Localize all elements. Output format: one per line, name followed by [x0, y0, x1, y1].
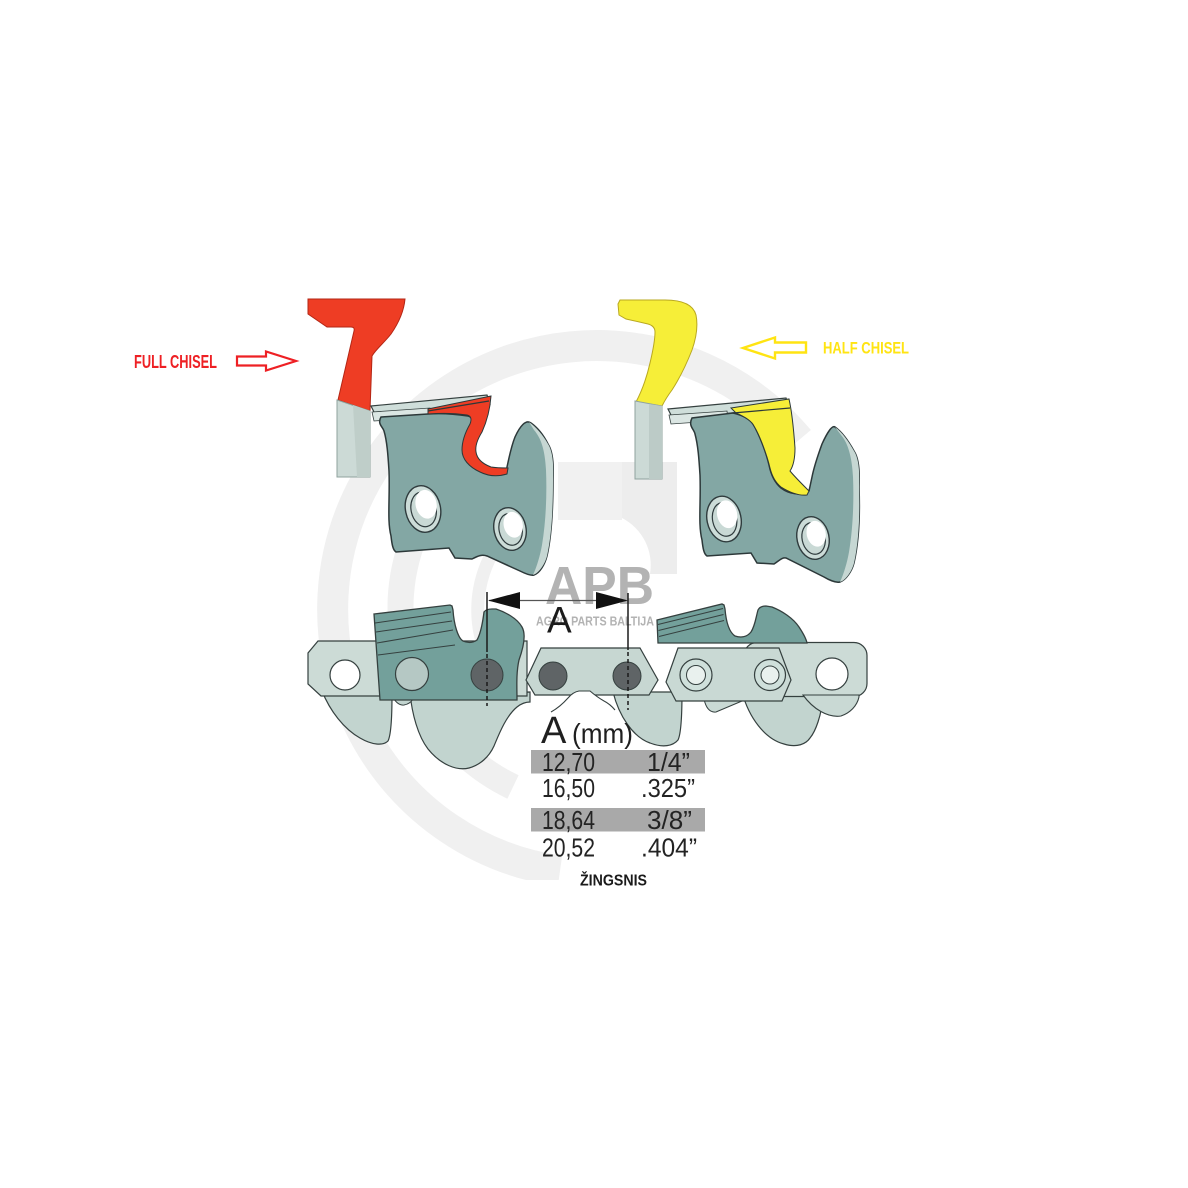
- svg-text:A: A: [547, 600, 572, 641]
- svg-text:18,64: 18,64: [542, 805, 595, 835]
- svg-text:.325”: .325”: [641, 773, 695, 803]
- svg-text:HALF CHISEL: HALF CHISEL: [823, 339, 909, 358]
- svg-text:(mm): (mm): [572, 718, 633, 749]
- svg-text:20,52: 20,52: [542, 833, 595, 863]
- svg-text:ŽINGSNIS: ŽINGSNIS: [580, 872, 647, 890]
- svg-text:A: A: [541, 710, 567, 752]
- svg-text:16,50: 16,50: [542, 773, 595, 803]
- svg-text:.404”: .404”: [641, 833, 697, 863]
- svg-text:FULL CHISEL: FULL CHISEL: [134, 352, 217, 372]
- svg-text:3/8”: 3/8”: [647, 805, 692, 835]
